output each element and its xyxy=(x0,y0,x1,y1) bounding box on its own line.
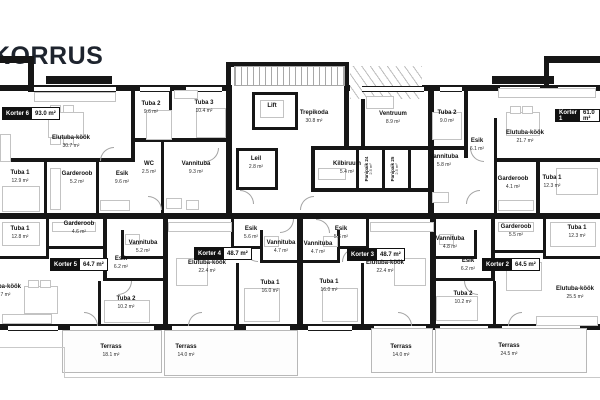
room-korter6-tuba2: Tuba 2 9.6 m² xyxy=(142,101,161,115)
apartment-area: 48.7 m² xyxy=(377,249,404,260)
room-name: Elutuba-köök xyxy=(366,260,404,268)
door-arc xyxy=(466,190,480,204)
room-name: Vannituba xyxy=(129,240,158,248)
room-area: 5.2 m² xyxy=(62,179,93,186)
room-name: Esik xyxy=(470,138,484,146)
room-area: 5.6 m² xyxy=(244,234,258,241)
wall xyxy=(494,118,497,217)
terrace-name: Terrass xyxy=(498,343,519,351)
window xyxy=(362,86,424,92)
terrace-area: 18.1 m² xyxy=(100,352,121,359)
apartment-area: 93.0 m² xyxy=(32,108,59,119)
kitchen-counter xyxy=(168,222,232,232)
wall xyxy=(543,219,546,259)
door-arc xyxy=(84,312,98,326)
window-rail xyxy=(46,76,112,84)
shelf xyxy=(498,200,534,211)
room-area: 6.2 m² xyxy=(461,266,475,273)
room-korter4-esik: Esik 5.6 m² xyxy=(244,226,258,240)
room-area: 9.3 m² xyxy=(182,169,211,176)
room-name: Tuba 1 xyxy=(543,175,562,183)
chair xyxy=(28,280,39,288)
room-panipaik-25: Panipaik 25 2.5 m² xyxy=(390,157,400,182)
bed xyxy=(556,168,598,195)
room-korter2-tuba1: Tuba 1 12.3 m² xyxy=(568,225,587,239)
apartment-name: Korter 5 xyxy=(51,259,80,270)
bed xyxy=(2,186,40,212)
wall xyxy=(428,146,468,150)
room-area: 30.7 m² xyxy=(52,143,90,150)
wall xyxy=(103,219,107,281)
room-korter2-tuba2: Tuba 2 10.2 m² xyxy=(454,291,473,305)
terrace-name: Terrass xyxy=(175,344,196,352)
room-area: 9.6 m² xyxy=(142,109,161,116)
room-name: Esik xyxy=(461,258,475,266)
room-area: 21.7 m² xyxy=(506,138,544,145)
wall xyxy=(366,219,369,249)
room-korter2-esik: Esik 6.2 m² xyxy=(461,258,475,272)
room-korter4-elutuba: Elutuba-köök 22.4 m² xyxy=(188,260,226,274)
door-arc xyxy=(300,196,314,210)
room-name: Lift xyxy=(267,103,276,111)
wall xyxy=(300,260,340,263)
wall xyxy=(361,91,365,148)
room-area: 25.7 m² xyxy=(0,292,21,299)
room-trepikoda: Trepikoda 30.8 m² xyxy=(300,110,328,124)
wall xyxy=(46,219,49,259)
room-korter6-garderoob: Garderoob 5.2 m² xyxy=(62,171,93,185)
apartment-area: 64.7 m² xyxy=(80,259,107,270)
room-area: 5.2 m² xyxy=(129,248,158,255)
apartment-badge-korter2: Korter 2 64.5 m² xyxy=(482,258,540,271)
room-area: 5.8 m² xyxy=(430,162,459,169)
door-arc xyxy=(188,312,202,326)
wall xyxy=(103,278,166,281)
room-area: 10.2 m² xyxy=(117,304,136,311)
terrace-name: Terrass xyxy=(100,344,121,352)
terrace-label-3: Terrass 14.0 m² xyxy=(390,344,411,358)
room-name: Leil xyxy=(249,156,263,164)
wall xyxy=(96,162,99,217)
room-korter5-garderoob: Garderoob 4.6 m² xyxy=(64,221,95,235)
terrace-label-4: Terrass 24.5 m² xyxy=(498,343,519,357)
room-name: Tuba 1 xyxy=(261,280,280,288)
room-korter6-vannituba: Vannituba 9.3 m² xyxy=(182,161,211,175)
room-name: Vannituba xyxy=(182,161,211,169)
room-name: Tuba 2 xyxy=(117,296,136,304)
room-name: Elutuba-köök xyxy=(506,130,544,138)
room-area: 5.6 m² xyxy=(334,234,348,241)
wall xyxy=(361,263,364,324)
wall xyxy=(494,158,600,162)
wall xyxy=(0,256,46,259)
room-area: 12.3 m² xyxy=(568,233,587,240)
wall xyxy=(236,263,239,324)
room-korter5-elutuba: Elutuba-köök 25.7 m² xyxy=(0,284,21,298)
wall xyxy=(493,281,496,328)
room-area: 9.0 m² xyxy=(438,118,457,125)
room-name: Garderoob xyxy=(501,224,532,232)
room-korter2-garderoob: Garderoob 5.5 m² xyxy=(501,224,532,238)
apartment-badge-korter5: Korter 5 64.7 m² xyxy=(50,258,108,271)
window xyxy=(440,86,462,92)
wall xyxy=(163,219,168,326)
room-name: Tuba 1 xyxy=(11,226,30,234)
bathtub xyxy=(166,198,182,209)
room-korter2-elutuba: Elutuba-köök 25.5 m² xyxy=(556,286,594,300)
room-name: Vannituba xyxy=(304,241,333,249)
room-area: 4.6 m² xyxy=(64,229,95,236)
floor-plan-canvas: KORRUS xyxy=(0,0,600,400)
wall xyxy=(44,162,47,217)
terrace-label-1: Terrass 18.1 m² xyxy=(100,344,121,358)
room-name: Tuba 2 xyxy=(142,101,161,109)
terrace-area: 14.0 m² xyxy=(175,352,196,359)
room-name: Garderoob xyxy=(498,176,529,184)
room-area: 4.1 m² xyxy=(498,184,529,191)
room-area: 4.7 m² xyxy=(304,249,333,256)
shelf xyxy=(50,168,61,210)
room-panipaik-24: Panipaik 24 2.5 m² xyxy=(364,157,374,182)
room-korter3-tuba1: Tuba 1 16.0 m² xyxy=(320,279,339,293)
apartment-badge-korter1: Korter 1 61.0 m² xyxy=(555,109,600,122)
room-korter2-vannituba: Vannituba 4.8 m² xyxy=(436,236,465,250)
room-area: 16.0 m² xyxy=(320,287,339,294)
kitchen-counter xyxy=(34,92,116,102)
room-name: Tuba 1 xyxy=(11,170,30,178)
room-name: Elutuba-köök xyxy=(52,135,90,143)
room-area: 5.4 m² xyxy=(333,169,361,176)
room-name: Trepikoda xyxy=(300,110,328,118)
apartment-name: Korter 1 xyxy=(556,110,580,121)
apartment-area: 48.7 m² xyxy=(224,248,251,259)
window xyxy=(8,325,58,331)
room-korter5-esik: Esik 6.2 m² xyxy=(114,256,128,270)
wall xyxy=(382,146,385,191)
room-name: Garderoob xyxy=(62,171,93,179)
wall xyxy=(46,246,106,249)
window-rail xyxy=(492,76,554,84)
room-korter4-vannituba: Vannituba 4.7 m² xyxy=(267,240,296,254)
window xyxy=(308,325,352,331)
room-korter1-elutuba: Elutuba-köök 21.7 m² xyxy=(506,130,544,144)
room-area: 12.9 m² xyxy=(11,178,30,185)
deck-edge xyxy=(64,377,600,378)
room-name: Vannituba xyxy=(267,240,296,248)
room-area: 10.4 m² xyxy=(195,108,214,115)
room-korter4-tuba1: Tuba 1 16.0 m² xyxy=(261,280,280,294)
wall xyxy=(311,188,434,192)
room-area: 2.5 m² xyxy=(395,157,400,182)
room-area: 8.9 m² xyxy=(379,119,407,126)
room-name: Garderoob xyxy=(64,221,95,229)
wall xyxy=(543,256,600,259)
room-area: 9.6 m² xyxy=(115,179,129,186)
room-korter6-tuba3: Tuba 3 10.4 m² xyxy=(195,100,214,114)
room-area: 12.8 m² xyxy=(11,234,30,241)
room-name: Tuba 1 xyxy=(320,279,339,287)
room-name: Tuba 3 xyxy=(195,100,214,108)
door-arc xyxy=(398,312,412,326)
room-name: WC xyxy=(142,161,156,169)
room-name: Elutuba-köök xyxy=(0,284,21,292)
room-area: 4.8 m² xyxy=(436,244,465,251)
wall xyxy=(121,230,124,259)
room-lift: Lift xyxy=(267,103,276,111)
wall xyxy=(260,260,300,263)
door-arc xyxy=(100,147,114,161)
room-korter6-tuba1: Tuba 1 12.9 m² xyxy=(11,170,30,184)
terrace-area: 24.5 m² xyxy=(498,351,519,358)
room-ventruum: Ventruum 8.9 m² xyxy=(379,111,407,125)
apartment-name: Korter 3 xyxy=(348,249,377,260)
room-name: Tuba 2 xyxy=(438,110,457,118)
chair xyxy=(63,105,74,113)
room-area: 5.5 m² xyxy=(501,232,532,239)
room-name: Esik xyxy=(244,226,258,234)
door-arc xyxy=(508,312,522,326)
room-korter5-tuba1: Tuba 1 12.8 m² xyxy=(11,226,30,240)
room-area: 12.3 m² xyxy=(543,183,562,190)
wardrobe xyxy=(174,90,198,99)
room-area: 10.2 m² xyxy=(454,299,473,306)
wall xyxy=(408,146,411,191)
sink xyxy=(186,200,199,210)
sofa xyxy=(0,134,11,162)
room-area: 4.7 m² xyxy=(267,248,296,255)
wall xyxy=(311,146,434,150)
room-name: Vannituba xyxy=(436,236,465,244)
shelf xyxy=(100,200,130,211)
room-name: Elutuba-köök xyxy=(188,260,226,268)
wall xyxy=(474,230,477,259)
room-area: 22.4 m² xyxy=(366,268,404,275)
door-arc xyxy=(240,190,254,204)
room-korter6-elutuba: Elutuba-köök 30.7 m² xyxy=(52,135,90,149)
room-name: Esik xyxy=(114,256,128,264)
sink xyxy=(432,192,449,203)
room-kilbiruum: Kilbiruum 5.4 m² xyxy=(333,161,361,175)
wall xyxy=(536,162,540,217)
apartment-name: Korter 6 xyxy=(3,108,32,119)
room-name: Elutuba-köök xyxy=(556,286,594,294)
room-area: 25.5 m² xyxy=(556,294,594,301)
room-korter1-esik: Esik 6.1 m² xyxy=(470,138,484,152)
chair xyxy=(522,106,533,114)
wall xyxy=(311,146,315,191)
apartment-badge-korter4: Korter 4 48.7 m² xyxy=(194,247,252,260)
kitchen-counter xyxy=(498,88,596,98)
room-area: 6.1 m² xyxy=(470,146,484,153)
door-arc xyxy=(148,196,162,210)
room-area: 16.0 m² xyxy=(261,288,280,295)
room-name: Tuba 1 xyxy=(568,225,587,233)
room-area: 6.2 m² xyxy=(114,264,128,271)
apartment-area: 61.0 m² xyxy=(580,110,599,121)
room-area: 2.8 m² xyxy=(249,164,263,171)
door-arc xyxy=(316,219,330,233)
wall xyxy=(226,85,232,219)
room-korter6-wc: WC 2.5 m² xyxy=(142,161,156,175)
vent-unit xyxy=(366,96,394,109)
wall xyxy=(98,281,101,328)
wall xyxy=(131,85,135,162)
door-arc xyxy=(280,219,294,233)
terrace-name: Terrass xyxy=(390,344,411,352)
kitchen-counter xyxy=(536,316,598,326)
apartment-name: Korter 4 xyxy=(195,248,224,259)
apartment-badge-korter6: Korter 6 93.0 m² xyxy=(2,107,60,120)
deck-edge xyxy=(64,347,65,378)
room-korter5-tuba2: Tuba 2 10.2 m² xyxy=(117,296,136,310)
room-korter3-vannituba: Vannituba 4.7 m² xyxy=(304,241,333,255)
room-korter1-tuba1: Tuba 1 12.3 m² xyxy=(543,175,562,189)
wall xyxy=(297,219,303,326)
kitchen-counter xyxy=(2,314,52,324)
room-korter1-garderoob: Garderoob 4.1 m² xyxy=(498,176,529,190)
room-korter6-leil: Leil 2.8 m² xyxy=(249,156,263,170)
wall xyxy=(544,56,549,92)
terrace-area: 14.0 m² xyxy=(390,352,411,359)
wall xyxy=(260,230,263,263)
room-korter6-esik: Esik 9.6 m² xyxy=(115,171,129,185)
stairs xyxy=(234,66,345,86)
wall xyxy=(491,250,545,253)
dining-table xyxy=(24,286,58,314)
terrace-label-2: Terrass 14.0 m² xyxy=(175,344,196,358)
room-korter5-vannituba: Vannituba 5.2 m² xyxy=(129,240,158,254)
chair xyxy=(40,280,51,288)
room-area: 22.4 m² xyxy=(188,268,226,275)
door-arc xyxy=(118,281,132,295)
chair xyxy=(510,106,521,114)
room-korter1-tuba2: Tuba 2 9.0 m² xyxy=(438,110,457,124)
room-name: Esik xyxy=(334,226,348,234)
room-name: Tuba 2 xyxy=(454,291,473,299)
room-name: Esik xyxy=(115,171,129,179)
deck-edge xyxy=(0,347,64,348)
room-area: 2.5 m² xyxy=(369,157,374,182)
room-korter3-elutuba: Elutuba-köök 22.4 m² xyxy=(366,260,404,274)
wall xyxy=(544,56,600,63)
wall xyxy=(344,91,349,148)
room-korter1-vannituba: Vannituba 5.8 m² xyxy=(430,154,459,168)
room-name: Kilbiruum xyxy=(333,161,361,169)
room-korter3-esik: Esik 5.6 m² xyxy=(334,226,348,240)
room-area: 2.5 m² xyxy=(142,169,156,176)
window xyxy=(140,86,170,92)
stairs-hatch xyxy=(350,66,422,99)
room-name: Vannituba xyxy=(430,154,459,162)
apartment-name: Korter 2 xyxy=(483,259,512,270)
room-area: 30.8 m² xyxy=(300,118,328,125)
apartment-area: 64.5 m² xyxy=(512,259,539,270)
room-name: Ventruum xyxy=(379,111,407,119)
kitchen-counter xyxy=(370,222,434,232)
